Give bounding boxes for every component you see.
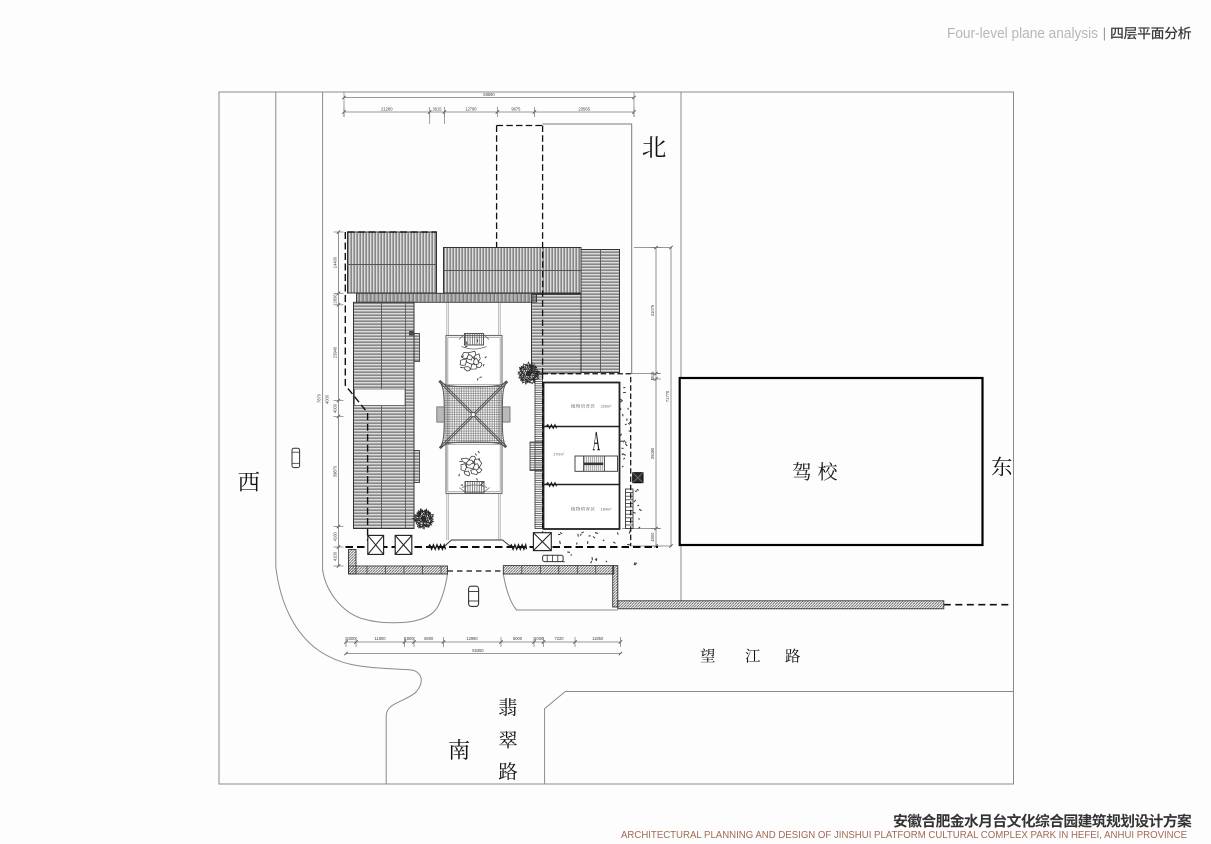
svg-text:4160: 4160 bbox=[333, 532, 338, 542]
svg-text:1800: 1800 bbox=[404, 636, 414, 641]
svg-text:3615: 3615 bbox=[432, 107, 442, 112]
svg-text:11850: 11850 bbox=[592, 636, 604, 641]
svg-text:14400: 14400 bbox=[333, 256, 338, 268]
svg-text:226m²: 226m² bbox=[601, 405, 612, 409]
svg-text:12790: 12790 bbox=[465, 107, 477, 112]
svg-text:2300: 2300 bbox=[346, 636, 356, 641]
svg-text:7220: 7220 bbox=[554, 636, 564, 641]
svg-text:Four-level plane analysis: Four-level plane analysis bbox=[947, 26, 1098, 42]
svg-text:11800: 11800 bbox=[374, 636, 386, 641]
svg-text:68590: 68590 bbox=[483, 92, 495, 97]
svg-text:ARCHITECTURAL PLANNING AND DES: ARCHITECTURAL PLANNING AND DESIGN OF JIN… bbox=[621, 830, 1188, 841]
svg-text:1000: 1000 bbox=[534, 636, 544, 641]
svg-text:|: | bbox=[1103, 25, 1107, 41]
svg-text:12980: 12980 bbox=[466, 636, 478, 641]
svg-text:4000: 4000 bbox=[333, 403, 338, 413]
svg-text:170m²: 170m² bbox=[553, 453, 564, 457]
svg-text:31075: 31075 bbox=[650, 304, 655, 316]
svg-text:4100: 4100 bbox=[333, 551, 338, 561]
svg-text:9675: 9675 bbox=[511, 107, 521, 112]
svg-text:39870: 39870 bbox=[333, 465, 338, 477]
svg-text:23940: 23940 bbox=[333, 346, 338, 358]
svg-text:1845: 1845 bbox=[650, 371, 655, 381]
svg-text:7870: 7870 bbox=[317, 393, 322, 403]
svg-text:4000: 4000 bbox=[325, 394, 330, 404]
svg-text:8000: 8000 bbox=[513, 636, 523, 641]
svg-text:71770: 71770 bbox=[665, 390, 670, 402]
svg-text:55350: 55350 bbox=[472, 648, 484, 653]
svg-text:4800: 4800 bbox=[650, 532, 655, 542]
svg-text:23565: 23565 bbox=[579, 107, 591, 112]
svg-text:21280: 21280 bbox=[381, 107, 393, 112]
svg-text:184m²: 184m² bbox=[601, 507, 612, 511]
svg-text:2836: 2836 bbox=[333, 294, 338, 304]
svg-text:35080: 35080 bbox=[650, 447, 655, 459]
svg-text:6800: 6800 bbox=[424, 636, 434, 641]
